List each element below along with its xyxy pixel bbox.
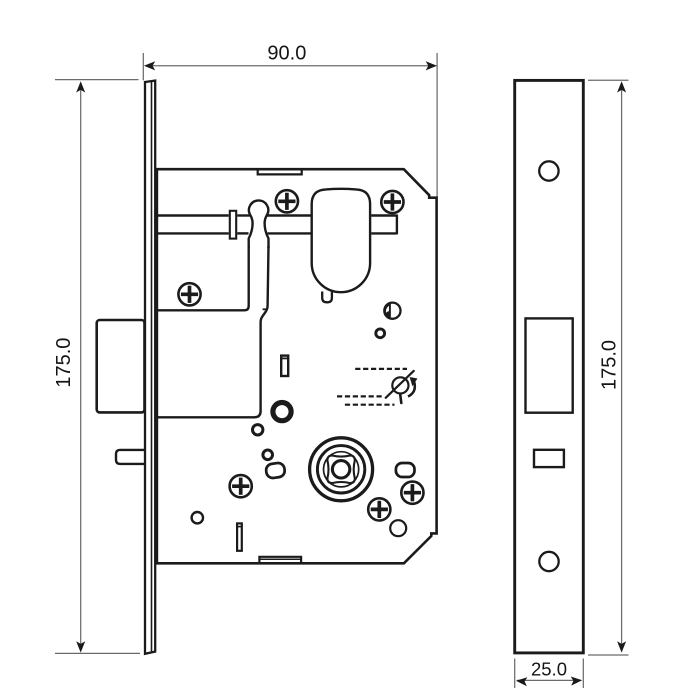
svg-text:25.0: 25.0: [531, 658, 567, 679]
svg-text:90.0: 90.0: [267, 43, 306, 65]
svg-text:175.0: 175.0: [599, 340, 621, 390]
svg-text:175.0: 175.0: [53, 338, 75, 388]
